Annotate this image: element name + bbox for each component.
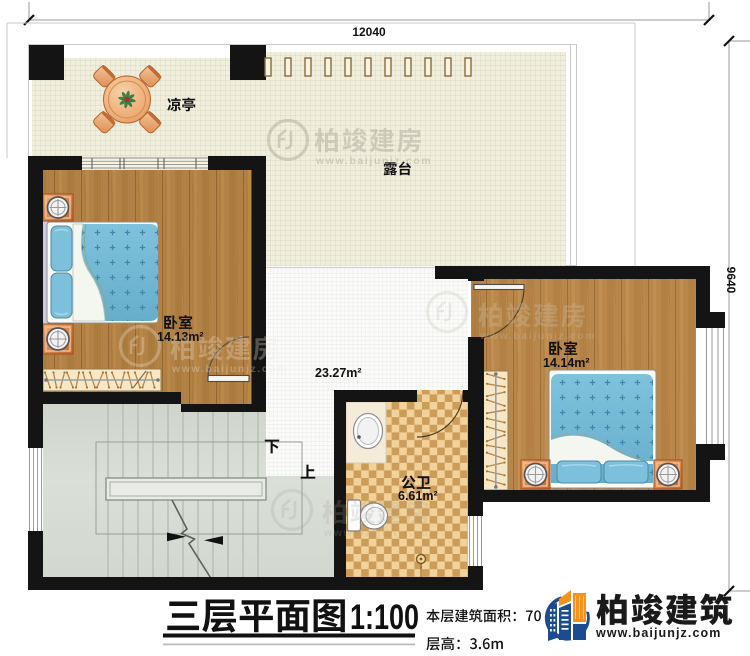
svg-text:14.14m²: 14.14m² bbox=[543, 356, 590, 370]
svg-text:www.baijunjz.com: www.baijunjz.com bbox=[323, 527, 440, 539]
svg-text:1:100: 1:100 bbox=[350, 596, 419, 637]
svg-text:12040: 12040 bbox=[352, 25, 386, 39]
svg-text:www.baijunjz.com: www.baijunjz.com bbox=[171, 363, 288, 375]
svg-text:www.baijunjz.com: www.baijunjz.com bbox=[595, 626, 721, 640]
svg-text:14.13m²: 14.13m² bbox=[157, 330, 204, 344]
svg-text:www.baijunjz.com: www.baijunjz.com bbox=[479, 330, 596, 342]
svg-text:23.27m²: 23.27m² bbox=[315, 366, 362, 380]
svg-text:www.baijunjz.com: www.baijunjz.com bbox=[315, 155, 432, 167]
svg-text:9640: 9640 bbox=[724, 267, 738, 294]
